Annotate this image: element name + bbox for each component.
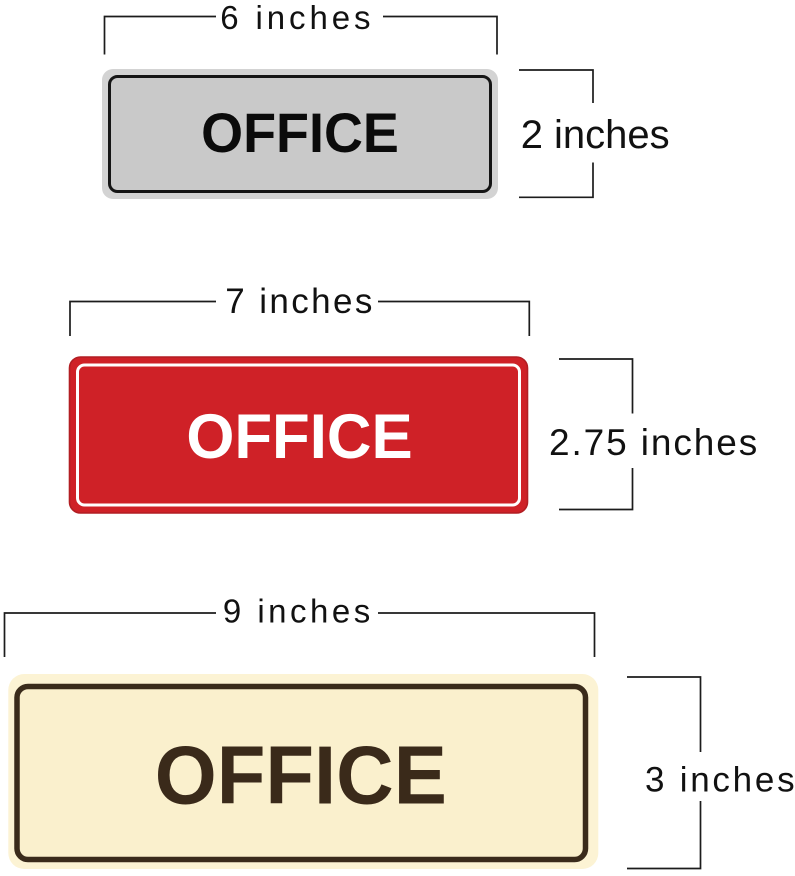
svg-text:OFFICE: OFFICE: [155, 729, 447, 822]
svg-text:OFFICE: OFFICE: [201, 101, 399, 164]
svg-text:2 inches: 2 inches: [521, 113, 670, 157]
svg-text:7 inches: 7 inches: [225, 282, 375, 321]
svg-text:3 inches: 3 inches: [645, 761, 795, 800]
svg-text:OFFICE: OFFICE: [186, 402, 412, 472]
svg-text:2.75 inches: 2.75 inches: [549, 422, 759, 463]
svg-text:6 inches: 6 inches: [220, 0, 374, 36]
svg-text:9 inches: 9 inches: [223, 593, 374, 630]
